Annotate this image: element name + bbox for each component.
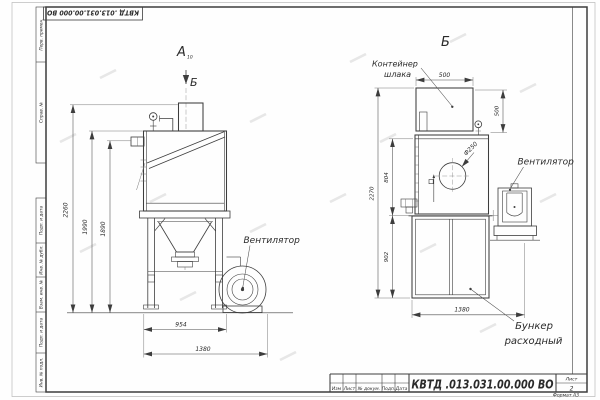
view-b-hopper-label-2: расходный [504,336,563,347]
side-label-podp-data-1: Подп. и дата [39,206,45,236]
dim-1990: 1990 [82,219,89,234]
dim-1890: 1890 [100,221,107,236]
view-a: А 10 Б [67,45,300,313]
tb-col-dokum: № докум. [357,386,380,392]
dim-f250: Ф250 [463,140,480,157]
view-b-container-label-2: шлака [384,70,411,79]
dim-804: 804 [384,172,390,183]
dim-500-top: 500 [439,72,451,79]
dim-2270: 2270 [370,186,376,200]
side-label-sprav-n: Справ. № [39,102,45,123]
view-a-section-mark: Б [190,76,198,89]
drawing-sheet: Перв. примен. Справ. № Подп. и дата Инв.… [0,0,600,400]
view-a-fan-label: Вентилятор [244,236,301,246]
side-label-podp-data-2: Подп. и дата [39,318,45,348]
dim-2260: 2260 [63,202,70,217]
top-stamp-doc-number: КВТД .013.031.00.000 ВО [47,8,139,16]
view-a-label-sub: 10 [187,55,193,61]
engineering-drawing: Перв. примен. Справ. № Подп. и дата Инв.… [0,0,600,400]
sidebar-column: Перв. примен. Справ. № Подп. и дата Инв.… [36,7,46,392]
view-b-dimensions: 500 500 804 2270 902 1380 [370,72,525,318]
dim-954: 954 [175,322,187,329]
side-label-vzam-inv: Взам. инв. № [39,279,45,309]
tb-format: Формат А3 [553,393,579,399]
view-b-label: Б [441,35,450,50]
tb-col-data: Дата [395,386,408,392]
top-stamp: КВТД .013.031.00.000 ВО [44,7,143,20]
side-label-perv-primen: Перв. примен. [39,18,45,50]
view-b-container-label-1: Контейнер [372,60,418,69]
dim-500-right: 500 [495,105,501,116]
tb-sheet-number: 2 [570,386,574,393]
tb-col-izm: Изм [332,386,342,392]
side-label-inv-podl: Инв. № подл. [39,358,45,388]
view-a-label: А [176,45,186,60]
dim-902: 902 [384,251,390,262]
dim-1380-a: 1380 [195,346,210,353]
side-label-inv-dubl: Инв. № дубл. [39,245,45,274]
tb-col-podp: Подп. [382,386,396,392]
tb-sheet-label: Лист [565,377,578,383]
title-block: Изм Лист № докум. Подп. Дата КВТД .013.0… [330,374,587,399]
tb-doc-number: КВТД .013.031.00.000 ВО [412,378,554,392]
view-b-fan-label: Вентилятор [518,158,575,168]
dim-1380-b: 1380 [454,307,469,314]
view-a-dimensions: 2260 1990 1890 954 1380 [63,105,268,358]
tb-col-list: Лист [343,386,356,392]
watermarks [60,34,556,360]
view-b-hopper-label-1: Бункер [515,321,553,332]
